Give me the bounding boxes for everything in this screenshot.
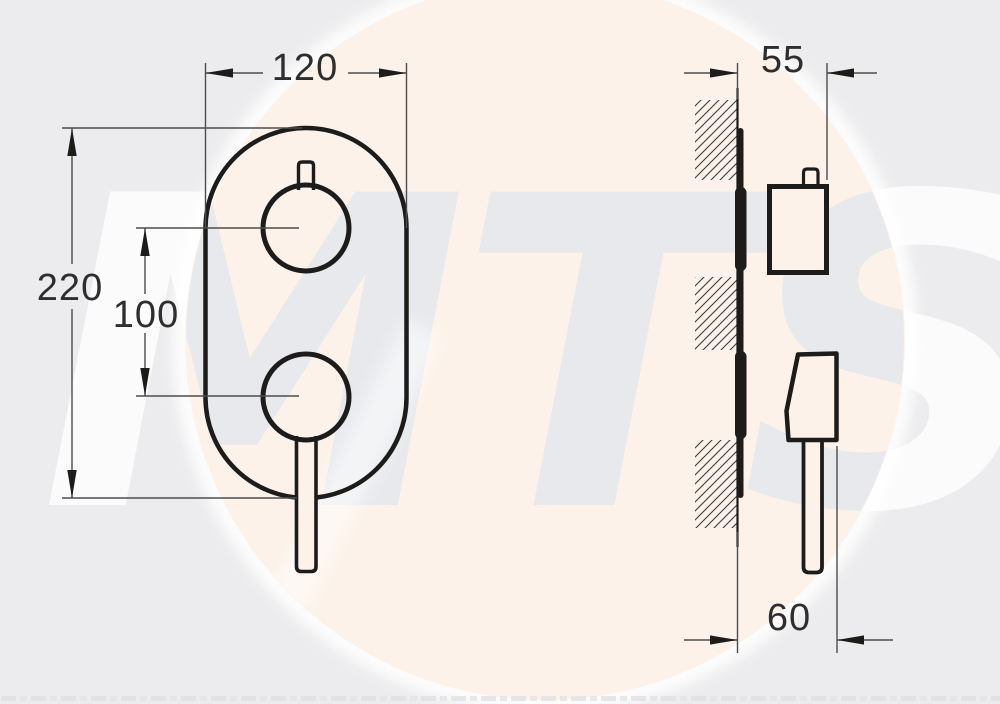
dimension-value: 55 — [761, 39, 805, 81]
dimension-value: 220 — [37, 267, 103, 309]
mixer-valve-dimension-drawing: MTS MTS — [0, 0, 1000, 704]
wall-hatch-lower — [695, 440, 737, 528]
upper-knob-side-profile — [770, 187, 827, 273]
lower-handle-lever-side — [804, 438, 823, 573]
wall-hatch-upper — [695, 100, 737, 180]
dimension-value: 100 — [113, 294, 179, 336]
bottom-watermark-strip — [0, 693, 1000, 704]
plate-edge-bulge-upper — [735, 187, 747, 271]
plate-edge-bulge-lower — [735, 351, 747, 439]
technical-drawing-page: MTS MTS — [0, 0, 1000, 704]
lower-handle-body-side — [787, 354, 837, 441]
dimension-value: 60 — [767, 597, 811, 639]
wall-hatch-middle — [695, 277, 737, 350]
lower-handle-lever — [297, 436, 317, 572]
dimension-value: 120 — [272, 47, 338, 89]
